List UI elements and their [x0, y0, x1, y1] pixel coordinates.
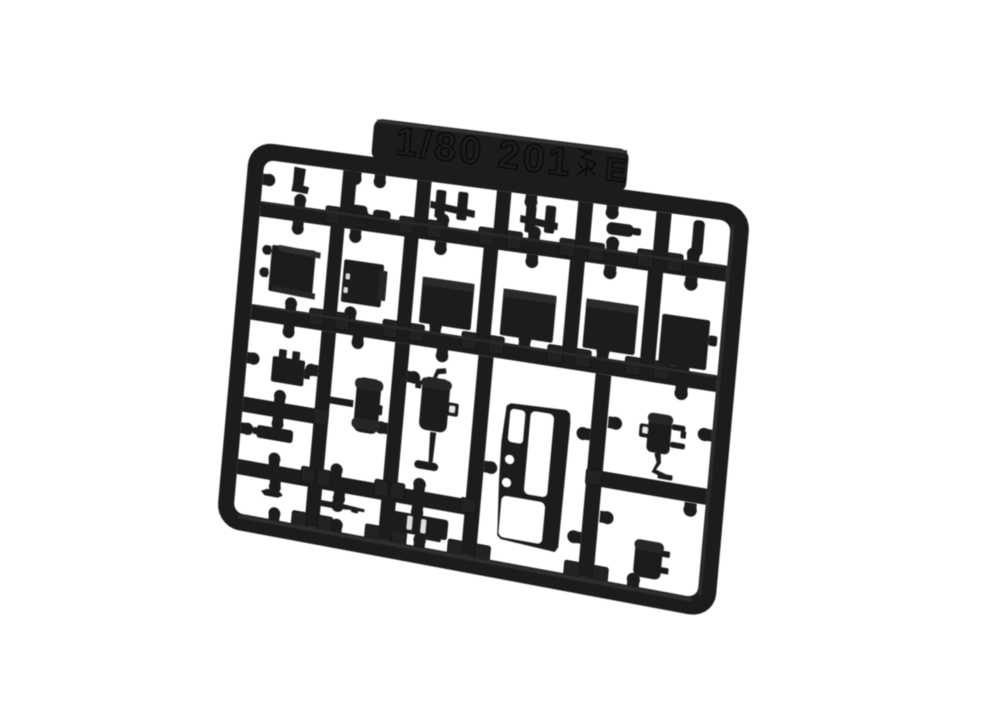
svg-text:E: E	[603, 151, 628, 190]
